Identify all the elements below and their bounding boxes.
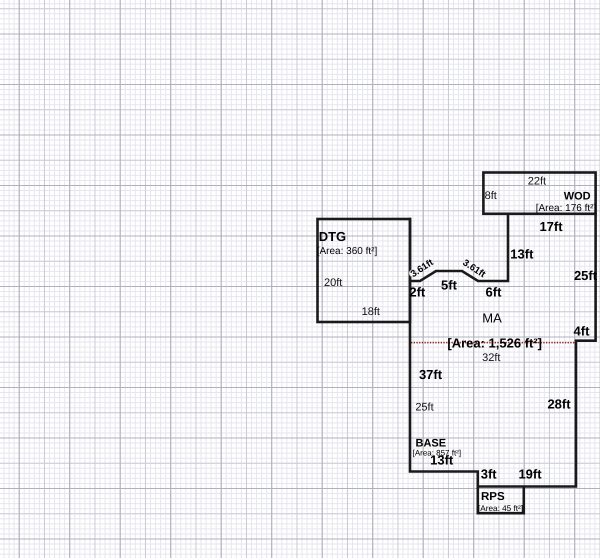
svg-text:[Area: 360 ft²]: [Area: 360 ft²] — [317, 246, 378, 257]
svg-text:25ft: 25ft — [415, 401, 433, 413]
svg-text:20ft: 20ft — [324, 277, 342, 289]
svg-text:28ft: 28ft — [547, 397, 571, 412]
svg-text:17ft: 17ft — [539, 219, 563, 234]
svg-text:[Area: 176 ft²]: [Area: 176 ft²] — [536, 203, 597, 214]
svg-text:25ft: 25ft — [574, 268, 598, 283]
svg-text:WOD: WOD — [564, 191, 591, 203]
svg-text:32ft: 32ft — [482, 352, 500, 364]
svg-text:13ft: 13ft — [510, 247, 534, 262]
svg-text:4ft: 4ft — [574, 324, 591, 339]
svg-text:[Area: 1,526 ft²]: [Area: 1,526 ft²] — [447, 336, 542, 351]
svg-text:3ft: 3ft — [481, 467, 498, 482]
svg-text:DTG: DTG — [319, 229, 346, 244]
svg-text:RPS: RPS — [481, 491, 505, 503]
svg-text:5ft: 5ft — [441, 278, 458, 293]
svg-text:8ft: 8ft — [485, 190, 497, 202]
svg-text:6ft: 6ft — [486, 285, 503, 300]
svg-text:22ft: 22ft — [528, 176, 546, 188]
svg-text:19ft: 19ft — [518, 467, 542, 482]
svg-text:37ft: 37ft — [419, 367, 443, 382]
svg-text:18ft: 18ft — [362, 306, 380, 318]
svg-text:MA: MA — [482, 311, 502, 326]
svg-text:[Area: 857 ft²]: [Area: 857 ft²] — [413, 448, 461, 457]
svg-text:2ft: 2ft — [409, 285, 426, 300]
svg-text:[Area: 45 ft²]: [Area: 45 ft²] — [478, 504, 523, 513]
